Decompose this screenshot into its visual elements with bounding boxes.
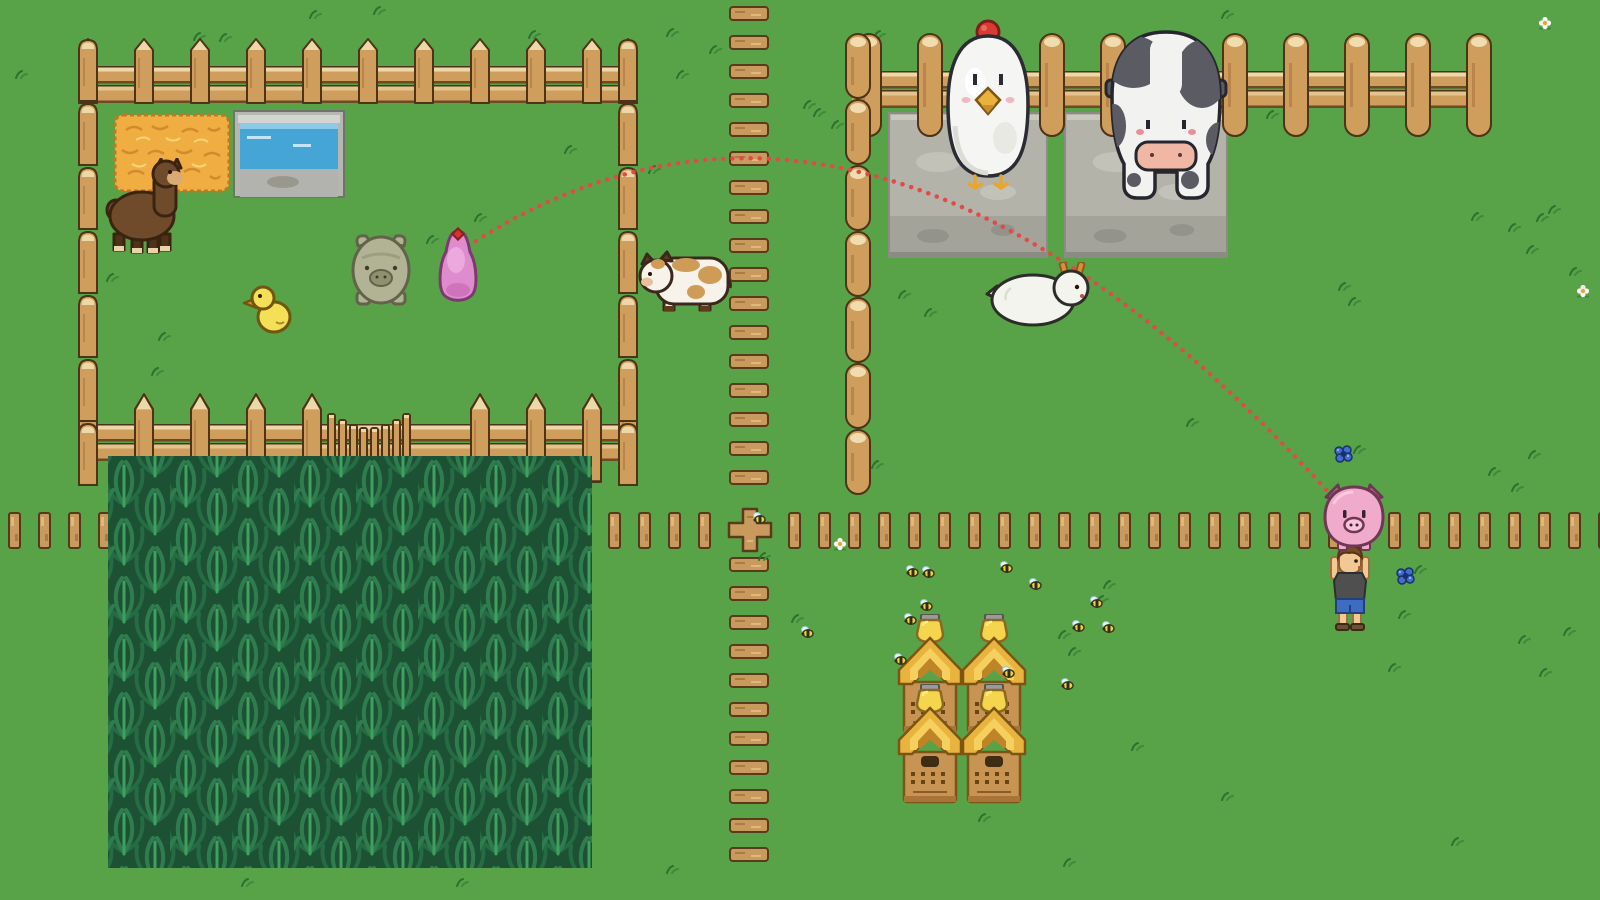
fence-post xyxy=(358,38,378,104)
fence-plank xyxy=(668,512,681,549)
path-plank xyxy=(729,586,769,601)
grass-tuft xyxy=(790,614,804,623)
fence-plank xyxy=(878,512,891,549)
fence-post xyxy=(1344,33,1370,137)
white-flower xyxy=(1576,284,1590,298)
bee xyxy=(1089,596,1103,608)
beehive[interactable] xyxy=(897,684,963,806)
path-plank xyxy=(729,6,769,21)
fence-plank xyxy=(818,512,831,549)
blue-flower xyxy=(1394,566,1416,586)
fence-post xyxy=(618,358,638,422)
bee xyxy=(752,512,766,524)
path-plank xyxy=(729,296,769,311)
grass-tuft xyxy=(1547,205,1561,214)
fence-plank xyxy=(968,512,981,549)
path-plank xyxy=(729,818,769,833)
grass-tuft xyxy=(1220,792,1234,801)
fence-post xyxy=(618,38,638,102)
fence-post xyxy=(78,422,98,486)
path-plank xyxy=(729,760,769,775)
path-plank xyxy=(729,267,769,282)
fence-post xyxy=(78,166,98,230)
fence-post xyxy=(302,38,322,104)
fence-plank xyxy=(848,512,861,549)
green-pig[interactable] xyxy=(350,228,412,306)
bee xyxy=(905,565,919,577)
path-plank xyxy=(729,383,769,398)
grass-tuft xyxy=(1487,467,1501,476)
path-plank xyxy=(729,93,769,108)
grass-tuft xyxy=(1517,635,1531,644)
fence-plank xyxy=(1448,512,1461,549)
path-plank xyxy=(729,35,769,50)
fence-post xyxy=(78,102,98,166)
fence-plank xyxy=(1148,512,1161,549)
fence-post xyxy=(618,166,638,230)
grass-tuft xyxy=(1527,450,1541,459)
grass-tuft xyxy=(675,70,689,79)
grass-tuft xyxy=(1352,445,1366,454)
grass-tuft xyxy=(1470,212,1484,221)
fence-post xyxy=(1283,33,1309,137)
path-plank xyxy=(729,325,769,340)
fence-post xyxy=(845,99,871,165)
grass-tuft xyxy=(1102,580,1116,589)
path-plank xyxy=(729,702,769,717)
fence-post xyxy=(845,363,871,429)
path-plank xyxy=(729,847,769,862)
fence-plank xyxy=(1208,512,1221,549)
grass-tuft xyxy=(308,10,322,19)
grass-tuft xyxy=(977,813,991,822)
fence-post xyxy=(845,297,871,363)
fence-post xyxy=(78,230,98,294)
grass-tuft xyxy=(372,6,386,15)
grass-tuft xyxy=(757,552,771,561)
fence-post xyxy=(134,38,154,104)
fence-post xyxy=(845,33,871,99)
farmer-character[interactable] xyxy=(1330,543,1370,631)
fence-plank xyxy=(1418,512,1431,549)
grass-tuft xyxy=(1507,223,1521,232)
goat[interactable] xyxy=(985,262,1093,328)
path-plank xyxy=(729,209,769,224)
grass-tuft xyxy=(1568,267,1582,276)
fence-plank xyxy=(788,512,801,549)
fence-post xyxy=(618,294,638,358)
fence-plank xyxy=(1058,512,1071,549)
fence-post xyxy=(845,429,871,495)
grass-tuft xyxy=(1562,627,1576,636)
giant-cow[interactable] xyxy=(1098,28,1234,202)
grass-tuft xyxy=(105,273,119,282)
grass-tuft xyxy=(897,290,911,299)
path-plank xyxy=(729,673,769,688)
fence-plank xyxy=(1478,512,1491,549)
path-plank xyxy=(729,180,769,195)
grass-tuft xyxy=(665,865,679,874)
target-marker xyxy=(450,226,466,242)
fence-post xyxy=(1466,33,1492,137)
alpaca[interactable] xyxy=(100,158,200,256)
fence-post xyxy=(526,38,546,104)
grass-tuft xyxy=(1510,483,1524,492)
grass-tuft xyxy=(1337,282,1351,291)
path-plank xyxy=(729,64,769,79)
giant-chicken[interactable] xyxy=(933,16,1043,198)
path-plank xyxy=(729,122,769,137)
path-plank xyxy=(729,615,769,630)
fence-plank xyxy=(698,512,711,549)
fence-plank xyxy=(638,512,651,549)
corn-field xyxy=(108,456,592,868)
path-plank xyxy=(729,789,769,804)
spotted-cow[interactable] xyxy=(634,248,734,318)
grass-tuft xyxy=(1535,213,1549,222)
grass-tuft xyxy=(150,367,164,376)
fence-plank xyxy=(1178,512,1191,549)
grass-tuft xyxy=(1057,630,1071,639)
fence-post xyxy=(618,230,638,294)
grass-tuft xyxy=(240,878,254,887)
grass-tuft xyxy=(1387,663,1401,672)
fence-plank xyxy=(908,512,921,549)
fence-post xyxy=(78,358,98,422)
fence-plank xyxy=(68,512,81,549)
beehive[interactable] xyxy=(961,684,1027,806)
bee xyxy=(1001,666,1015,678)
grass-tuft xyxy=(923,308,937,317)
fence-plank xyxy=(1088,512,1101,549)
fence-plank xyxy=(998,512,1011,549)
bee xyxy=(903,613,917,625)
path-plank xyxy=(729,354,769,369)
path-plank xyxy=(729,238,769,253)
fence-plank xyxy=(38,512,51,549)
white-flower xyxy=(1538,16,1552,30)
bee xyxy=(800,626,814,638)
grass-tuft xyxy=(157,332,171,341)
grass-tuft xyxy=(1347,297,1361,306)
grass-tuft xyxy=(1062,858,1076,867)
fence-post xyxy=(618,102,638,166)
grass-tuft xyxy=(1220,10,1234,19)
fence-post xyxy=(190,38,210,104)
grass-tuft xyxy=(563,145,577,154)
fence-plank xyxy=(1388,512,1401,549)
bee xyxy=(921,566,935,578)
held-pig[interactable] xyxy=(1320,483,1388,551)
path-cross-plank xyxy=(726,506,774,554)
grass-tuft xyxy=(1067,647,1081,656)
grass-tuft xyxy=(1525,245,1539,254)
fence-post xyxy=(78,294,98,358)
fence-post xyxy=(845,165,871,231)
grass-tuft xyxy=(1185,418,1199,427)
fence-post xyxy=(1405,33,1431,137)
bee xyxy=(1028,578,1042,590)
fence-plank xyxy=(1268,512,1281,549)
grass-tuft xyxy=(647,165,661,174)
grass-tuft xyxy=(14,70,28,79)
grass-tuft xyxy=(473,213,487,222)
path-plank xyxy=(729,151,769,166)
fence-plank xyxy=(1118,512,1131,549)
grass-tuft xyxy=(812,108,826,117)
blue-flower xyxy=(1332,444,1354,464)
bee xyxy=(1101,621,1115,633)
grass-tuft xyxy=(830,120,844,129)
fence-plank xyxy=(608,512,621,549)
path-plank xyxy=(729,731,769,746)
fence-post xyxy=(414,38,434,104)
fence-post xyxy=(618,422,638,486)
grass-tuft xyxy=(455,878,469,887)
grass-tuft xyxy=(1130,742,1144,751)
grass-tuft xyxy=(708,45,722,54)
fence-plank xyxy=(1508,512,1521,549)
fence-post xyxy=(470,38,490,104)
fence-post xyxy=(246,38,266,104)
path-plank xyxy=(729,644,769,659)
grass-tuft xyxy=(1397,610,1411,619)
fence-post xyxy=(845,231,871,297)
fence-plank xyxy=(1028,512,1041,549)
path-plank xyxy=(729,441,769,456)
white-flower xyxy=(833,537,847,551)
fence-post xyxy=(78,38,98,102)
grass-tuft xyxy=(218,33,232,42)
water-trough xyxy=(233,110,345,200)
path-plank xyxy=(729,470,769,485)
grass-tuft xyxy=(870,460,884,469)
path-plank xyxy=(729,412,769,427)
fence-plank xyxy=(1238,512,1251,549)
duckling[interactable] xyxy=(242,280,296,335)
bee xyxy=(999,561,1013,573)
grass-tuft xyxy=(1265,110,1279,119)
bee xyxy=(893,653,907,665)
fence-plank xyxy=(1538,512,1551,549)
grass-tuft xyxy=(1450,837,1464,846)
fence-plank xyxy=(938,512,951,549)
fence-plank xyxy=(1568,512,1581,549)
fence-post xyxy=(582,38,602,104)
bee xyxy=(1060,678,1074,690)
bee xyxy=(919,599,933,611)
fence-plank xyxy=(8,512,21,549)
grass-tuft xyxy=(665,28,679,37)
farm-scene[interactable] xyxy=(0,0,1600,900)
fence-plank xyxy=(1298,512,1311,549)
bee xyxy=(1071,620,1085,632)
grass-tuft xyxy=(1538,668,1552,677)
